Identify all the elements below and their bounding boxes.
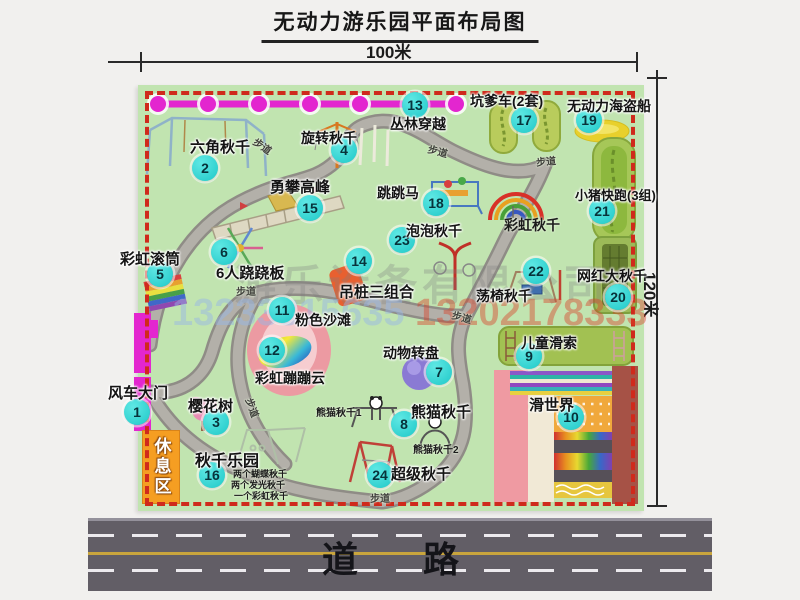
jumping-horse-icon (428, 177, 482, 214)
map-illustration (0, 0, 800, 600)
animal-turntable-icon (402, 356, 436, 390)
bubble-swing-icon (434, 243, 475, 290)
piggy-run-track-icon (593, 138, 635, 242)
swing-chair-icon (506, 270, 560, 302)
walkway-paths (150, 121, 545, 502)
slide-world-icon (494, 366, 638, 504)
windmill-gate-icon (134, 313, 158, 431)
super-swing-icon (350, 442, 400, 482)
pink-beach-icon (247, 304, 331, 396)
cherry-tree-icon (189, 397, 217, 431)
rest-area: 休息区 (142, 430, 180, 504)
pit-car-track-icons (490, 101, 560, 153)
net-swing-icon (594, 237, 636, 313)
park-plan-screenshot: 无动力游乐园平面布局图 100米 120米 (0, 0, 800, 600)
rainbow-roller-icon (143, 274, 186, 311)
kids-zipline-icon (499, 327, 633, 365)
panda-swing-2-icon (420, 415, 450, 450)
panda-swing-1-icon (352, 396, 398, 427)
jungle-crossing-line (147, 93, 467, 115)
rest-area-label: 休息区 (149, 437, 174, 497)
hexagon-swing-icon (147, 118, 266, 176)
